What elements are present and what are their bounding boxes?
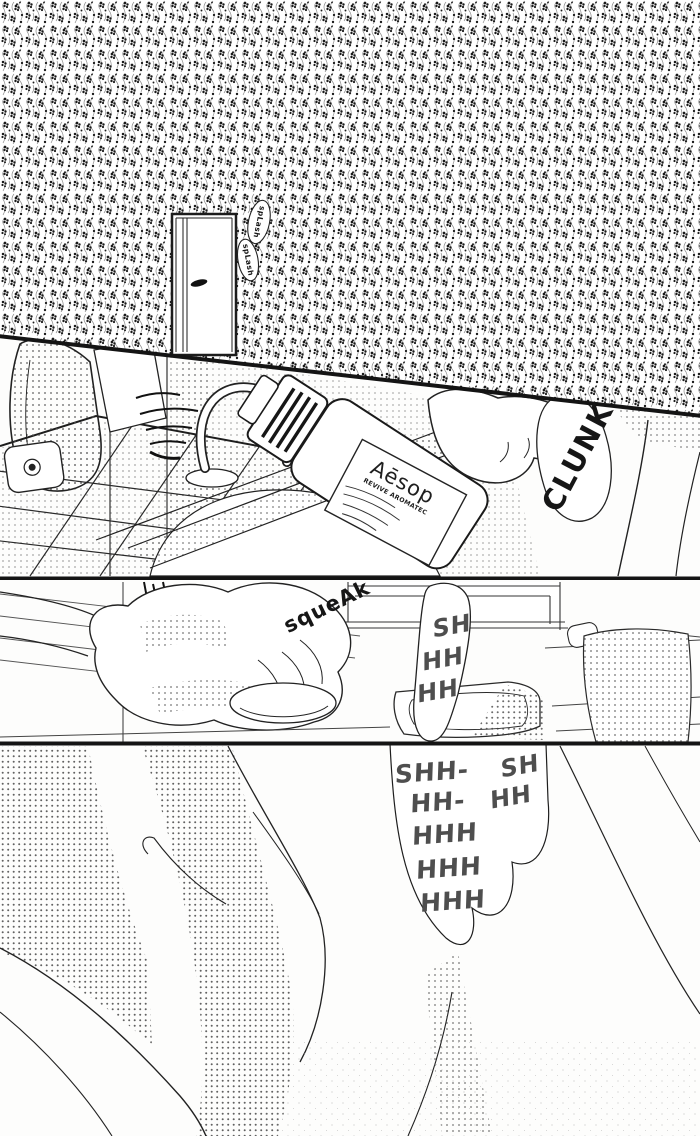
panel4-legs-scene: [0, 744, 700, 1136]
manga-page: spLash spLash CLUNK Aēsop REVIVE AROMATE…: [0, 0, 700, 1136]
sfx-shower-main-2: HH-: [410, 788, 466, 817]
sfx-water-line-2: HH: [422, 643, 464, 675]
sfx-shower-main-5: HHH: [420, 886, 486, 916]
door: [172, 214, 236, 355]
sfx-shower-side-1: SH: [500, 750, 540, 781]
panel-artwork: [0, 0, 700, 1136]
sfx-shower-side-2: HH: [490, 781, 532, 813]
sfx-shower-main-3: HHH: [412, 819, 478, 849]
panel-border-2-3: [0, 577, 700, 581]
sfx-shower-main-4: HHH: [416, 853, 482, 883]
panel-border-3-4: [0, 742, 700, 746]
sfx-water-line-1: SH: [433, 610, 472, 641]
sfx-shower-main-1: SHH-: [395, 757, 470, 787]
jar-clasp: [3, 440, 65, 493]
sfx-water-line-3: HH: [417, 675, 459, 707]
